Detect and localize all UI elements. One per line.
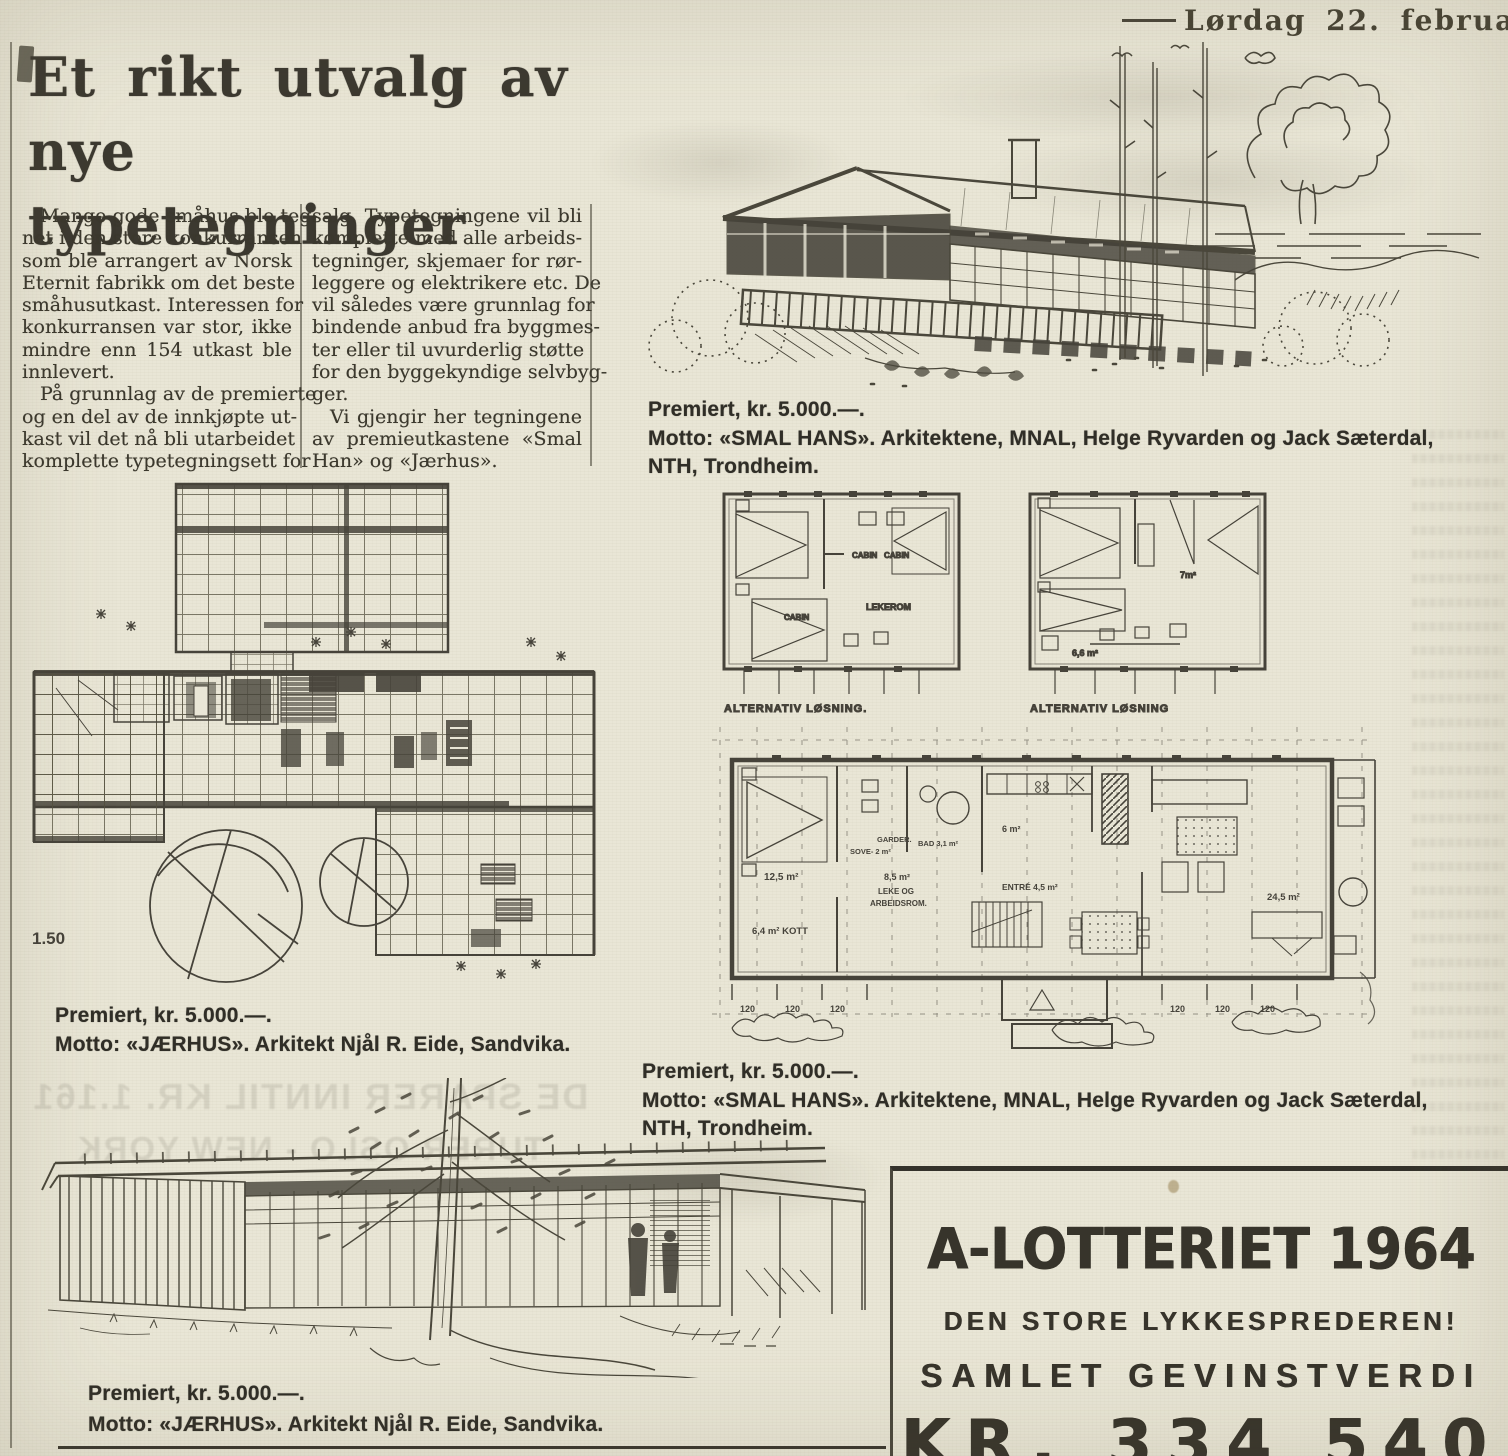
article-line: komplette typetegningsett for bbox=[22, 450, 292, 472]
floor-plan-alt-2: 7m² 6,6 m² ALTERNATIV LØSNING bbox=[1030, 491, 1265, 714]
article-line: bindende anbud fra byggmes- bbox=[312, 316, 582, 338]
article-line: mindre enn 154 utkast ble bbox=[22, 339, 292, 361]
article-line: leggere og elektrikere etc. De bbox=[312, 272, 582, 294]
site-plan-scale-label: 1.50 bbox=[32, 929, 65, 948]
article-line: småhusutkast. Interessen for bbox=[22, 294, 292, 316]
ad-subtitle: DEN STORE LYKKESPREDEREN! bbox=[893, 1306, 1508, 1337]
ad-amount: KR. 334 540 bbox=[893, 1407, 1508, 1456]
article-line: vil således være grunnlag for bbox=[312, 294, 582, 316]
article-column-2: salg. Typetegningene vil bli komplette m… bbox=[312, 205, 582, 473]
room-label: 6,6 m² bbox=[1072, 648, 1098, 658]
floor-plans-alternative: CABIN CABIN CABIN LEKEROM ALTERNATIV LØS… bbox=[712, 486, 1312, 714]
article-line: og en del av de innkjøpte ut- bbox=[22, 406, 292, 428]
dimension-label: 120 bbox=[1260, 1004, 1275, 1014]
room-label: 6,4 m² KOTT bbox=[752, 926, 808, 937]
room-label: 8,5 m² bbox=[884, 872, 910, 882]
caption-line: Motto: «JÆRHUS». Arkitekt Njål R. Eide, … bbox=[55, 1031, 600, 1060]
tree-sketch bbox=[320, 1078, 614, 1340]
advertisement-a-lotteriet: A-LOTTERIET 1964 DEN STORE LYKKESPREDERE… bbox=[890, 1166, 1508, 1456]
article-line: Han» og «Jærhus». bbox=[312, 450, 582, 472]
article-column-1: Mange gode småhus ble teg- net i den sto… bbox=[22, 205, 292, 473]
site-plan-jaerhus: 1.50 bbox=[26, 474, 611, 1004]
article-line: Mange gode småhus ble teg- bbox=[22, 205, 292, 227]
room-label: CABIN bbox=[884, 551, 910, 560]
article-line: av premieutkastene «Smal bbox=[312, 428, 582, 450]
room-label: ENTRÉ 4,5 m² bbox=[1002, 882, 1058, 892]
caption-plan-jaerhus: Premiert, kr. 5.000.—. Motto: «JÆRHUS». … bbox=[55, 1002, 600, 1059]
caption-line: Premiert, kr. 5.000.—. bbox=[88, 1378, 648, 1409]
article-line: kast vil det nå bli utarbeidet bbox=[22, 428, 292, 450]
house-perspective-sketch-jaerhus bbox=[20, 1078, 880, 1378]
dimension-label: 120 bbox=[1170, 1004, 1185, 1014]
article-line: innlevert. bbox=[22, 361, 292, 383]
plan-trees bbox=[150, 830, 408, 982]
masthead-rule bbox=[1122, 19, 1176, 22]
article-line: tegninger, skjemaer for rør- bbox=[312, 250, 582, 272]
left-column-rule bbox=[10, 42, 12, 1448]
column-divider-rule bbox=[300, 204, 302, 468]
plan-label: ALTERNATIV LØSNING. bbox=[724, 703, 867, 714]
dimension-label: 120 bbox=[740, 1004, 755, 1014]
article-line: ger. bbox=[312, 383, 582, 405]
caption-house-smal-hans: Premiert, kr. 5.000.—. Motto: «SMAL HANS… bbox=[648, 396, 1478, 482]
room-label: LEKEROM bbox=[866, 602, 911, 612]
caption-house-jaerhus: Premiert, kr. 5.000.—. Motto: «JÆRHUS». … bbox=[88, 1378, 648, 1440]
caption-line: Motto: «SMAL HANS». Arkitektene, MNAL, H… bbox=[648, 425, 1478, 454]
room-label: BAD 3,1 m² bbox=[918, 839, 959, 848]
room-label: GARDER. bbox=[877, 835, 912, 844]
caption-line: Motto: «JÆRHUS». Arkitekt Njål R. Eide, … bbox=[88, 1409, 648, 1440]
article-line: for den byggekyndige selvbyg- bbox=[312, 361, 582, 383]
house-structure bbox=[723, 140, 1255, 366]
room-label: ARBEIDSROM. bbox=[870, 899, 927, 908]
room-label: LEKE OG bbox=[878, 887, 914, 896]
article-line: konkurransen var stor, ikke bbox=[22, 316, 292, 338]
caption-line: Premiert, kr. 5.000.—. bbox=[648, 396, 1478, 425]
newspaper-page: Lørdag 22. februar 1964 Et rikt utvalg a… bbox=[0, 0, 1508, 1456]
ground-sketch bbox=[48, 1310, 780, 1378]
house-perspective-sketch-smal-hans bbox=[615, 28, 1505, 393]
dimension-label: 120 bbox=[830, 1004, 845, 1014]
floor-plan-alt-1: CABIN CABIN CABIN LEKEROM ALTERNATIV LØS… bbox=[724, 491, 959, 714]
plan-grid-structure bbox=[34, 484, 594, 955]
ad-line3: SAMLET GEVINSTVERDI bbox=[893, 1357, 1508, 1395]
caption-line: NTH, Trondheim. bbox=[648, 453, 1478, 482]
ad-title: A-LOTTERIET 1964 bbox=[893, 1217, 1508, 1283]
headline-line: Et rikt utvalg av bbox=[28, 40, 568, 114]
room-label: 24,5 m² bbox=[1267, 892, 1300, 903]
dimension-label: 120 bbox=[1215, 1004, 1230, 1014]
room-label: CABIN bbox=[852, 551, 878, 560]
bottom-rule bbox=[58, 1446, 886, 1449]
article-line: komplette med alle arbeids- bbox=[312, 227, 582, 249]
floor-plan-smal-hans: 12,5 m² SOVE- 2 m² GARDER. BAD 3,1 m² 6 … bbox=[672, 722, 1390, 1052]
house-structure bbox=[42, 1140, 865, 1318]
bleedthrough-text-column bbox=[1412, 430, 1504, 1165]
article-line: På grunnlag av de premierte bbox=[22, 383, 292, 405]
room-label: SOVE- 2 m² bbox=[850, 847, 891, 856]
article-line: som ble arrangert av Norsk bbox=[22, 250, 292, 272]
article-right-rule bbox=[590, 204, 592, 466]
room-label: 6 m² bbox=[1002, 824, 1021, 834]
room-label: 12,5 m² bbox=[764, 872, 799, 883]
article-line: salg. Typetegningene vil bli bbox=[312, 205, 582, 227]
plan-label: ALTERNATIV LØSNING bbox=[1030, 703, 1169, 714]
dimension-label: 120 bbox=[785, 1004, 800, 1014]
article-line: Eternit fabrikk om det beste bbox=[22, 272, 292, 294]
landscape-sketch bbox=[1112, 46, 1481, 312]
article-line: Vi gjengir her tegningene bbox=[312, 406, 582, 428]
room-label: 7m² bbox=[1180, 570, 1196, 580]
article-line: ter eller til uvurderlig støtte bbox=[312, 339, 582, 361]
caption-line: Premiert, kr. 5.000.—. bbox=[55, 1002, 600, 1031]
article-line: net i den store konkurransen bbox=[22, 227, 292, 249]
room-label: CABIN bbox=[784, 613, 810, 622]
